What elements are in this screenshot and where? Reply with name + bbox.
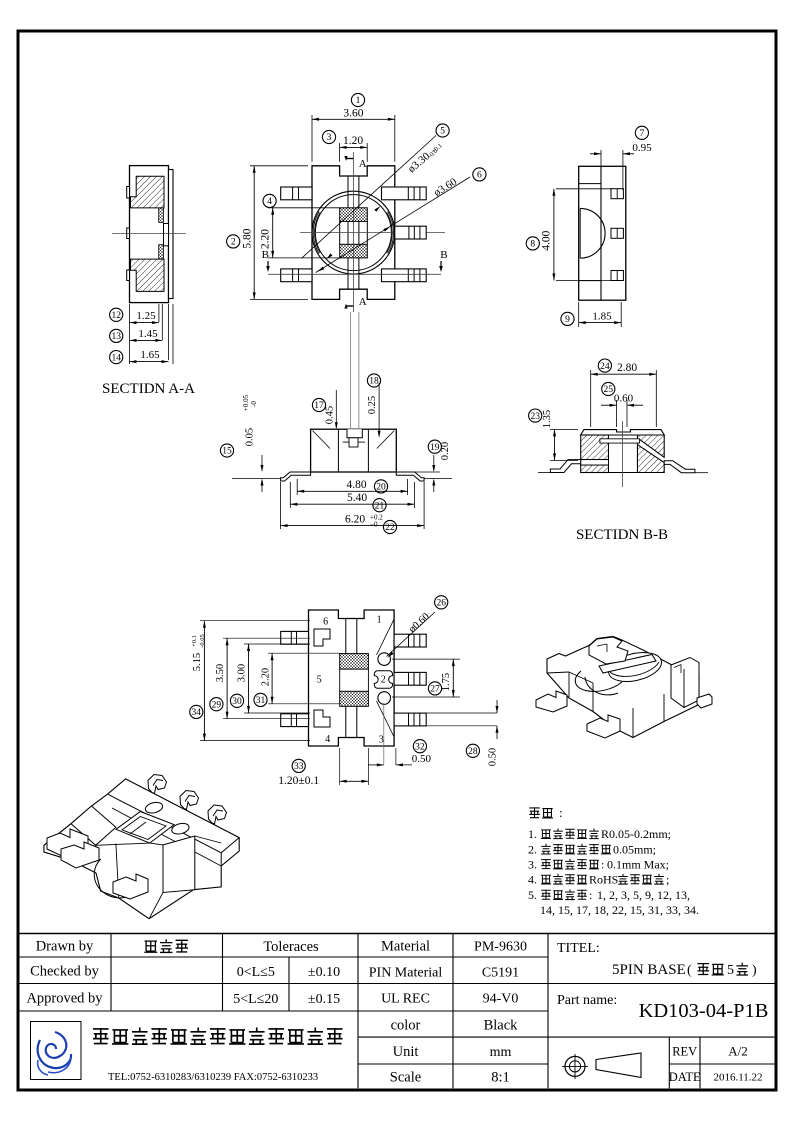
svg-text:1.20±0.1: 1.20±0.1 [278, 775, 319, 787]
svg-text:Scale: Scale [390, 1070, 421, 1086]
svg-text:0.50: 0.50 [412, 753, 432, 765]
svg-text:9: 9 [565, 315, 570, 325]
svg-text:8:1: 8:1 [491, 1070, 510, 1086]
svg-text:1.: 1. [528, 827, 537, 841]
svg-text:2.20: 2.20 [261, 668, 272, 686]
svg-text:Checked by: Checked by [30, 964, 100, 980]
svg-text:7: 7 [640, 129, 645, 139]
svg-text:1.35: 1.35 [542, 410, 553, 428]
svg-text:4.: 4. [528, 872, 537, 886]
svg-text:0.25: 0.25 [367, 396, 378, 414]
svg-text:26: 26 [436, 599, 446, 609]
svg-text:20: 20 [376, 483, 386, 493]
svg-text:Part name:: Part name: [557, 993, 617, 1008]
svg-text:8: 8 [530, 240, 535, 250]
svg-text:A: A [359, 296, 367, 308]
svg-text:6.20: 6.20 [345, 514, 365, 526]
svg-text:1, 2, 3, 5, 9, 12, 13,: 1, 2, 3, 5, 9, 12, 13, [597, 888, 690, 902]
svg-text::: : [601, 857, 604, 871]
svg-text:21: 21 [375, 501, 385, 511]
svg-text:KD103-04-P1B: KD103-04-P1B [639, 1000, 769, 1022]
svg-text:1.65: 1.65 [140, 349, 160, 361]
svg-text:C5191: C5191 [482, 966, 519, 981]
svg-text:0<L≤5: 0<L≤5 [237, 965, 275, 980]
svg-text:3.00: 3.00 [237, 664, 248, 682]
svg-text:25: 25 [604, 385, 614, 395]
svg-text:): ) [752, 963, 757, 978]
svg-text:3.: 3. [528, 857, 537, 871]
svg-text:UL REC: UL REC [381, 992, 430, 1007]
svg-text:30: 30 [232, 697, 242, 707]
svg-text:2.: 2. [528, 842, 537, 856]
svg-text:4.80: 4.80 [346, 479, 366, 491]
svg-text:5: 5 [317, 675, 322, 686]
svg-text:1.75: 1.75 [441, 673, 452, 691]
svg-text:0.1mm Max;: 0.1mm Max; [607, 857, 669, 871]
svg-text:24: 24 [600, 362, 610, 372]
svg-text:22: 22 [385, 523, 395, 533]
svg-text:SECTIDN B-B: SECTIDN B-B [576, 527, 668, 543]
svg-text:6: 6 [477, 171, 482, 181]
svg-text:12: 12 [111, 311, 121, 321]
svg-text:Unit: Unit [393, 1044, 419, 1060]
svg-text:5: 5 [727, 963, 734, 978]
svg-text:REV: REV [672, 1045, 697, 1059]
svg-text:0.20: 0.20 [440, 442, 451, 460]
svg-text:2.80: 2.80 [617, 362, 637, 374]
svg-text:PM-9630: PM-9630 [474, 940, 527, 955]
svg-text:5.40: 5.40 [347, 492, 367, 504]
svg-text:±0.15: ±0.15 [308, 992, 340, 1007]
svg-text:+0.1: +0.1 [191, 635, 198, 647]
svg-text:mm: mm [490, 1045, 512, 1060]
svg-text:23: 23 [530, 412, 540, 422]
svg-text:0.45: 0.45 [325, 406, 336, 424]
svg-text:DATE: DATE [669, 1070, 701, 1084]
svg-text:4: 4 [325, 734, 330, 745]
svg-text:4: 4 [267, 197, 272, 207]
svg-text:1: 1 [356, 96, 361, 106]
svg-text:2: 2 [381, 674, 386, 685]
svg-text:A: A [359, 158, 367, 170]
svg-text:±0.10: ±0.10 [308, 965, 340, 980]
svg-text:0.60: 0.60 [614, 393, 634, 405]
svg-text:94-V0: 94-V0 [483, 992, 519, 1007]
svg-text:+0.05: +0.05 [242, 394, 250, 411]
svg-text:2.20: 2.20 [260, 229, 272, 249]
svg-text:Black: Black [484, 1018, 519, 1034]
svg-text:Toleraces: Toleraces [263, 939, 319, 955]
svg-text:-0.05: -0.05 [199, 634, 206, 648]
svg-text:color: color [391, 1018, 421, 1034]
svg-text:34: 34 [192, 708, 202, 718]
svg-text:0.95: 0.95 [632, 142, 652, 154]
svg-text:31: 31 [256, 696, 266, 706]
svg-text:33: 33 [294, 762, 304, 772]
svg-text:4.00: 4.00 [541, 230, 553, 250]
svg-text::: : [589, 888, 592, 902]
svg-text:19: 19 [430, 443, 440, 453]
svg-text:32: 32 [415, 742, 425, 752]
svg-text:2: 2 [231, 238, 236, 248]
svg-text:B: B [440, 249, 447, 261]
svg-text:Drawn by: Drawn by [36, 939, 94, 955]
svg-text:5: 5 [440, 127, 445, 137]
svg-text:14: 14 [111, 353, 121, 363]
svg-text:28: 28 [468, 747, 478, 757]
svg-text:0.05mm;: 0.05mm; [613, 842, 656, 856]
svg-text:1.45: 1.45 [138, 328, 158, 340]
svg-text:3.50: 3.50 [215, 664, 226, 682]
svg-text:5.15: 5.15 [192, 653, 203, 671]
svg-text:TEL:0752-6310283/6310239 FAX:: TEL:0752-6310283/6310239 FAX:0752-631023… [108, 1072, 318, 1083]
svg-text:13: 13 [111, 332, 121, 342]
svg-text:−0: −0 [370, 521, 378, 529]
svg-text:0.50: 0.50 [488, 748, 499, 766]
svg-text:5.: 5. [528, 888, 537, 902]
svg-text:TITEL:: TITEL: [557, 941, 600, 956]
svg-text:R0.05-0.2mm;: R0.05-0.2mm; [601, 827, 671, 841]
svg-text:PIN Material: PIN Material [369, 966, 443, 981]
svg-text:0.05: 0.05 [245, 428, 256, 446]
svg-text:15: 15 [222, 447, 232, 457]
svg-text:1: 1 [377, 615, 382, 626]
svg-text:B: B [262, 249, 269, 261]
svg-text:Material: Material [381, 939, 430, 955]
svg-text:Approved by: Approved by [26, 991, 103, 1007]
svg-text:2016.11.22: 2016.11.22 [713, 1072, 762, 1084]
svg-text:5.80: 5.80 [242, 228, 254, 248]
svg-text:18: 18 [369, 377, 379, 387]
svg-text:;: ; [666, 872, 669, 886]
svg-text:5<L≤20: 5<L≤20 [233, 992, 278, 1007]
svg-text:RoHS: RoHS [589, 872, 618, 886]
svg-text:29: 29 [212, 700, 222, 710]
svg-text:3: 3 [327, 133, 332, 143]
svg-text:3.60: 3.60 [343, 108, 363, 120]
svg-text:3: 3 [379, 735, 384, 746]
svg-text:14, 15, 17, 18, 22, 15, 31, 33: 14, 15, 17, 18, 22, 15, 31, 33, 34. [540, 903, 699, 917]
svg-text:6: 6 [323, 617, 328, 628]
svg-text:-0: -0 [250, 401, 258, 407]
svg-text:(: ( [687, 963, 692, 978]
svg-text:5PIN BASE: 5PIN BASE [612, 962, 686, 978]
svg-text:17: 17 [314, 401, 324, 411]
svg-text:27: 27 [430, 685, 440, 695]
svg-text:1.20: 1.20 [343, 135, 363, 147]
svg-text::: : [559, 805, 563, 820]
svg-text:SECTIDN A-A: SECTIDN A-A [102, 381, 195, 397]
svg-text:1.25: 1.25 [136, 310, 156, 322]
svg-text:A/2: A/2 [728, 1044, 748, 1059]
svg-text:1.85: 1.85 [592, 311, 612, 323]
